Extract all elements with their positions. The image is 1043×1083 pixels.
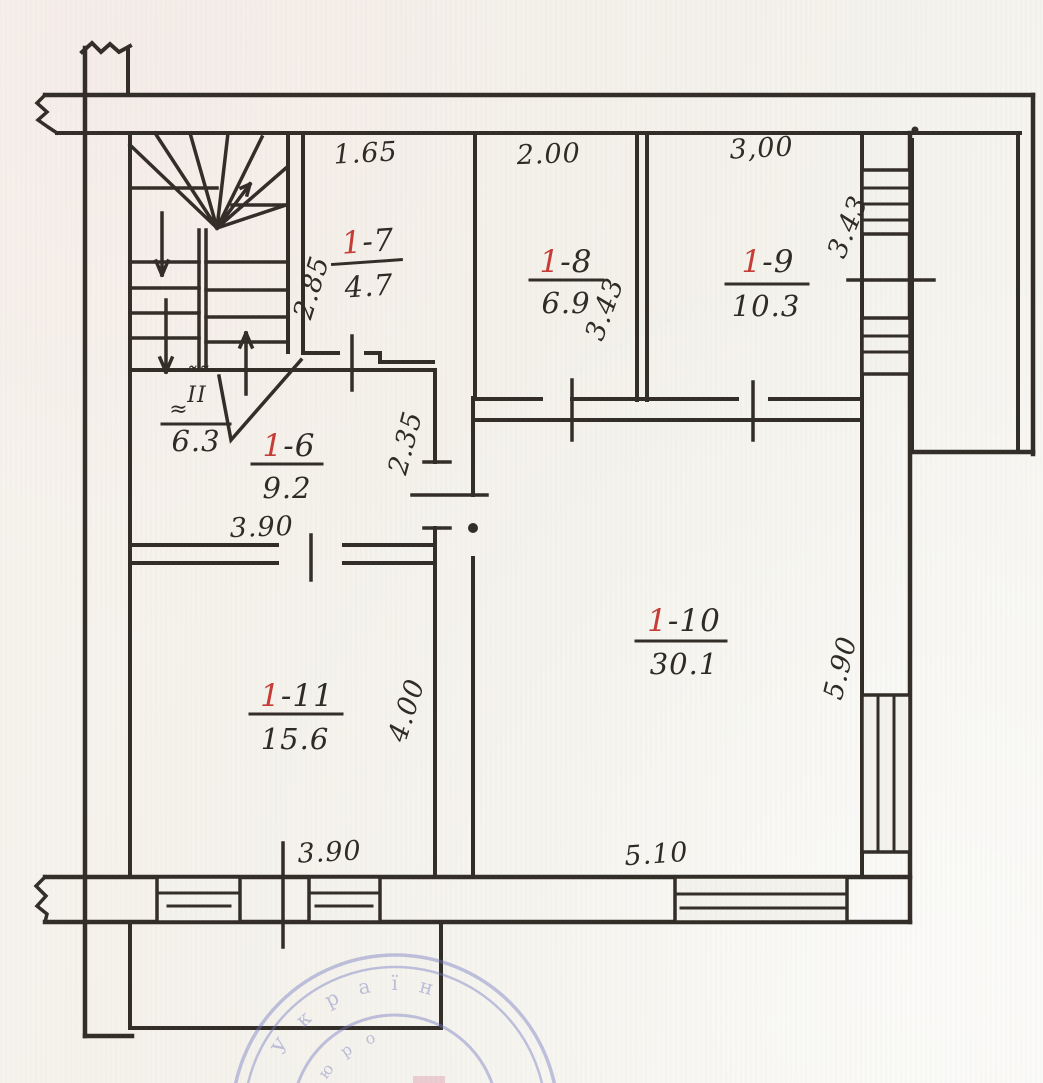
scanned-floor-plan: ˜˜ II ≈ 6.3 1-7 4.7 1-8 6.9 1-9 10.3 1-6… — [0, 0, 1043, 1083]
staircase — [130, 133, 301, 440]
stamp-red-smudge — [413, 1076, 445, 1083]
floor-plan-svg: ˜˜ II ≈ 6.3 1-7 4.7 1-8 6.9 1-9 10.3 1-6… — [0, 0, 1043, 1083]
dim-room7-width: 1.65 — [333, 136, 399, 170]
room-area: 10.3 — [732, 289, 801, 323]
left-wall-top-break — [82, 43, 130, 52]
room-label-1-9: 1-9 10.3 — [726, 244, 808, 323]
room-area: 9.2 — [262, 471, 311, 505]
room-number: 1-8 — [540, 244, 593, 280]
room-label-1-11: 1-11 15.6 — [250, 678, 342, 756]
dim-room6-depth: 2.35 — [382, 408, 429, 479]
stair-down-arrow-1 — [156, 213, 168, 275]
dim-room9-width: 3,00 — [729, 131, 795, 165]
room-number: 1-11 — [260, 678, 334, 714]
dim-room10-depth: 5.90 — [818, 633, 864, 703]
window-bottom-left — [157, 877, 240, 922]
stair-stringer — [199, 230, 206, 370]
door-pivot-dot — [468, 523, 478, 533]
midwall-door-ticks — [412, 462, 487, 528]
room-area: 6.9 — [541, 286, 590, 320]
room-label-1-7: 1-7 4.7 — [330, 222, 404, 306]
stairwell-area: 6.3 — [171, 424, 220, 458]
room-number: 1-9 — [742, 244, 795, 280]
stairwell-approx-sign: ≈ — [169, 397, 188, 422]
window-right-mid — [862, 318, 910, 374]
dim-room11-width: 3.90 — [297, 835, 363, 869]
bottom-wall-left-break — [36, 877, 47, 922]
room-number: 1-10 — [647, 603, 721, 639]
window-right-lower — [862, 695, 910, 852]
room-number: 1-6 — [263, 428, 316, 464]
stair-up-arrow-right — [240, 333, 252, 394]
dimension-labels: 1.65 2.00 3,00 2.85 3.43 3.43 2.35 3.90 … — [229, 131, 874, 872]
room-area: 30.1 — [650, 647, 719, 681]
dim-room7-depth: 2.85 — [287, 252, 336, 323]
window-bottom-mid — [309, 877, 380, 922]
room-label-1-6: 1-6 9.2 — [252, 428, 322, 505]
room-label-1-10: 1-10 30.1 — [636, 603, 726, 681]
top-wall-left-break — [37, 95, 57, 133]
dim-room11-depth: 4.00 — [382, 675, 432, 747]
round-stamp: У к р а ї н б ю р о — [232, 955, 558, 1083]
room-number: 1-7 — [340, 222, 395, 262]
dim-room6-width: 3.90 — [229, 511, 294, 544]
stairwell-roman-numeral: II — [186, 383, 207, 408]
room7-bottom-wall — [303, 353, 433, 362]
ink-speck — [912, 127, 919, 134]
room-area: 4.7 — [342, 267, 394, 304]
stair-down-arrow-2 — [160, 300, 172, 372]
dim-room10-width: 5.10 — [623, 837, 689, 872]
room8-room9-wall — [637, 133, 647, 400]
window-bottom-right — [675, 877, 847, 922]
room-labels: 1-7 4.7 1-8 6.9 1-9 10.3 1-6 9.2 1-11 15… — [250, 222, 808, 756]
room-area: 15.6 — [261, 722, 330, 756]
dim-room8-width: 2.00 — [515, 138, 581, 171]
stair-winder-fan — [130, 133, 286, 228]
